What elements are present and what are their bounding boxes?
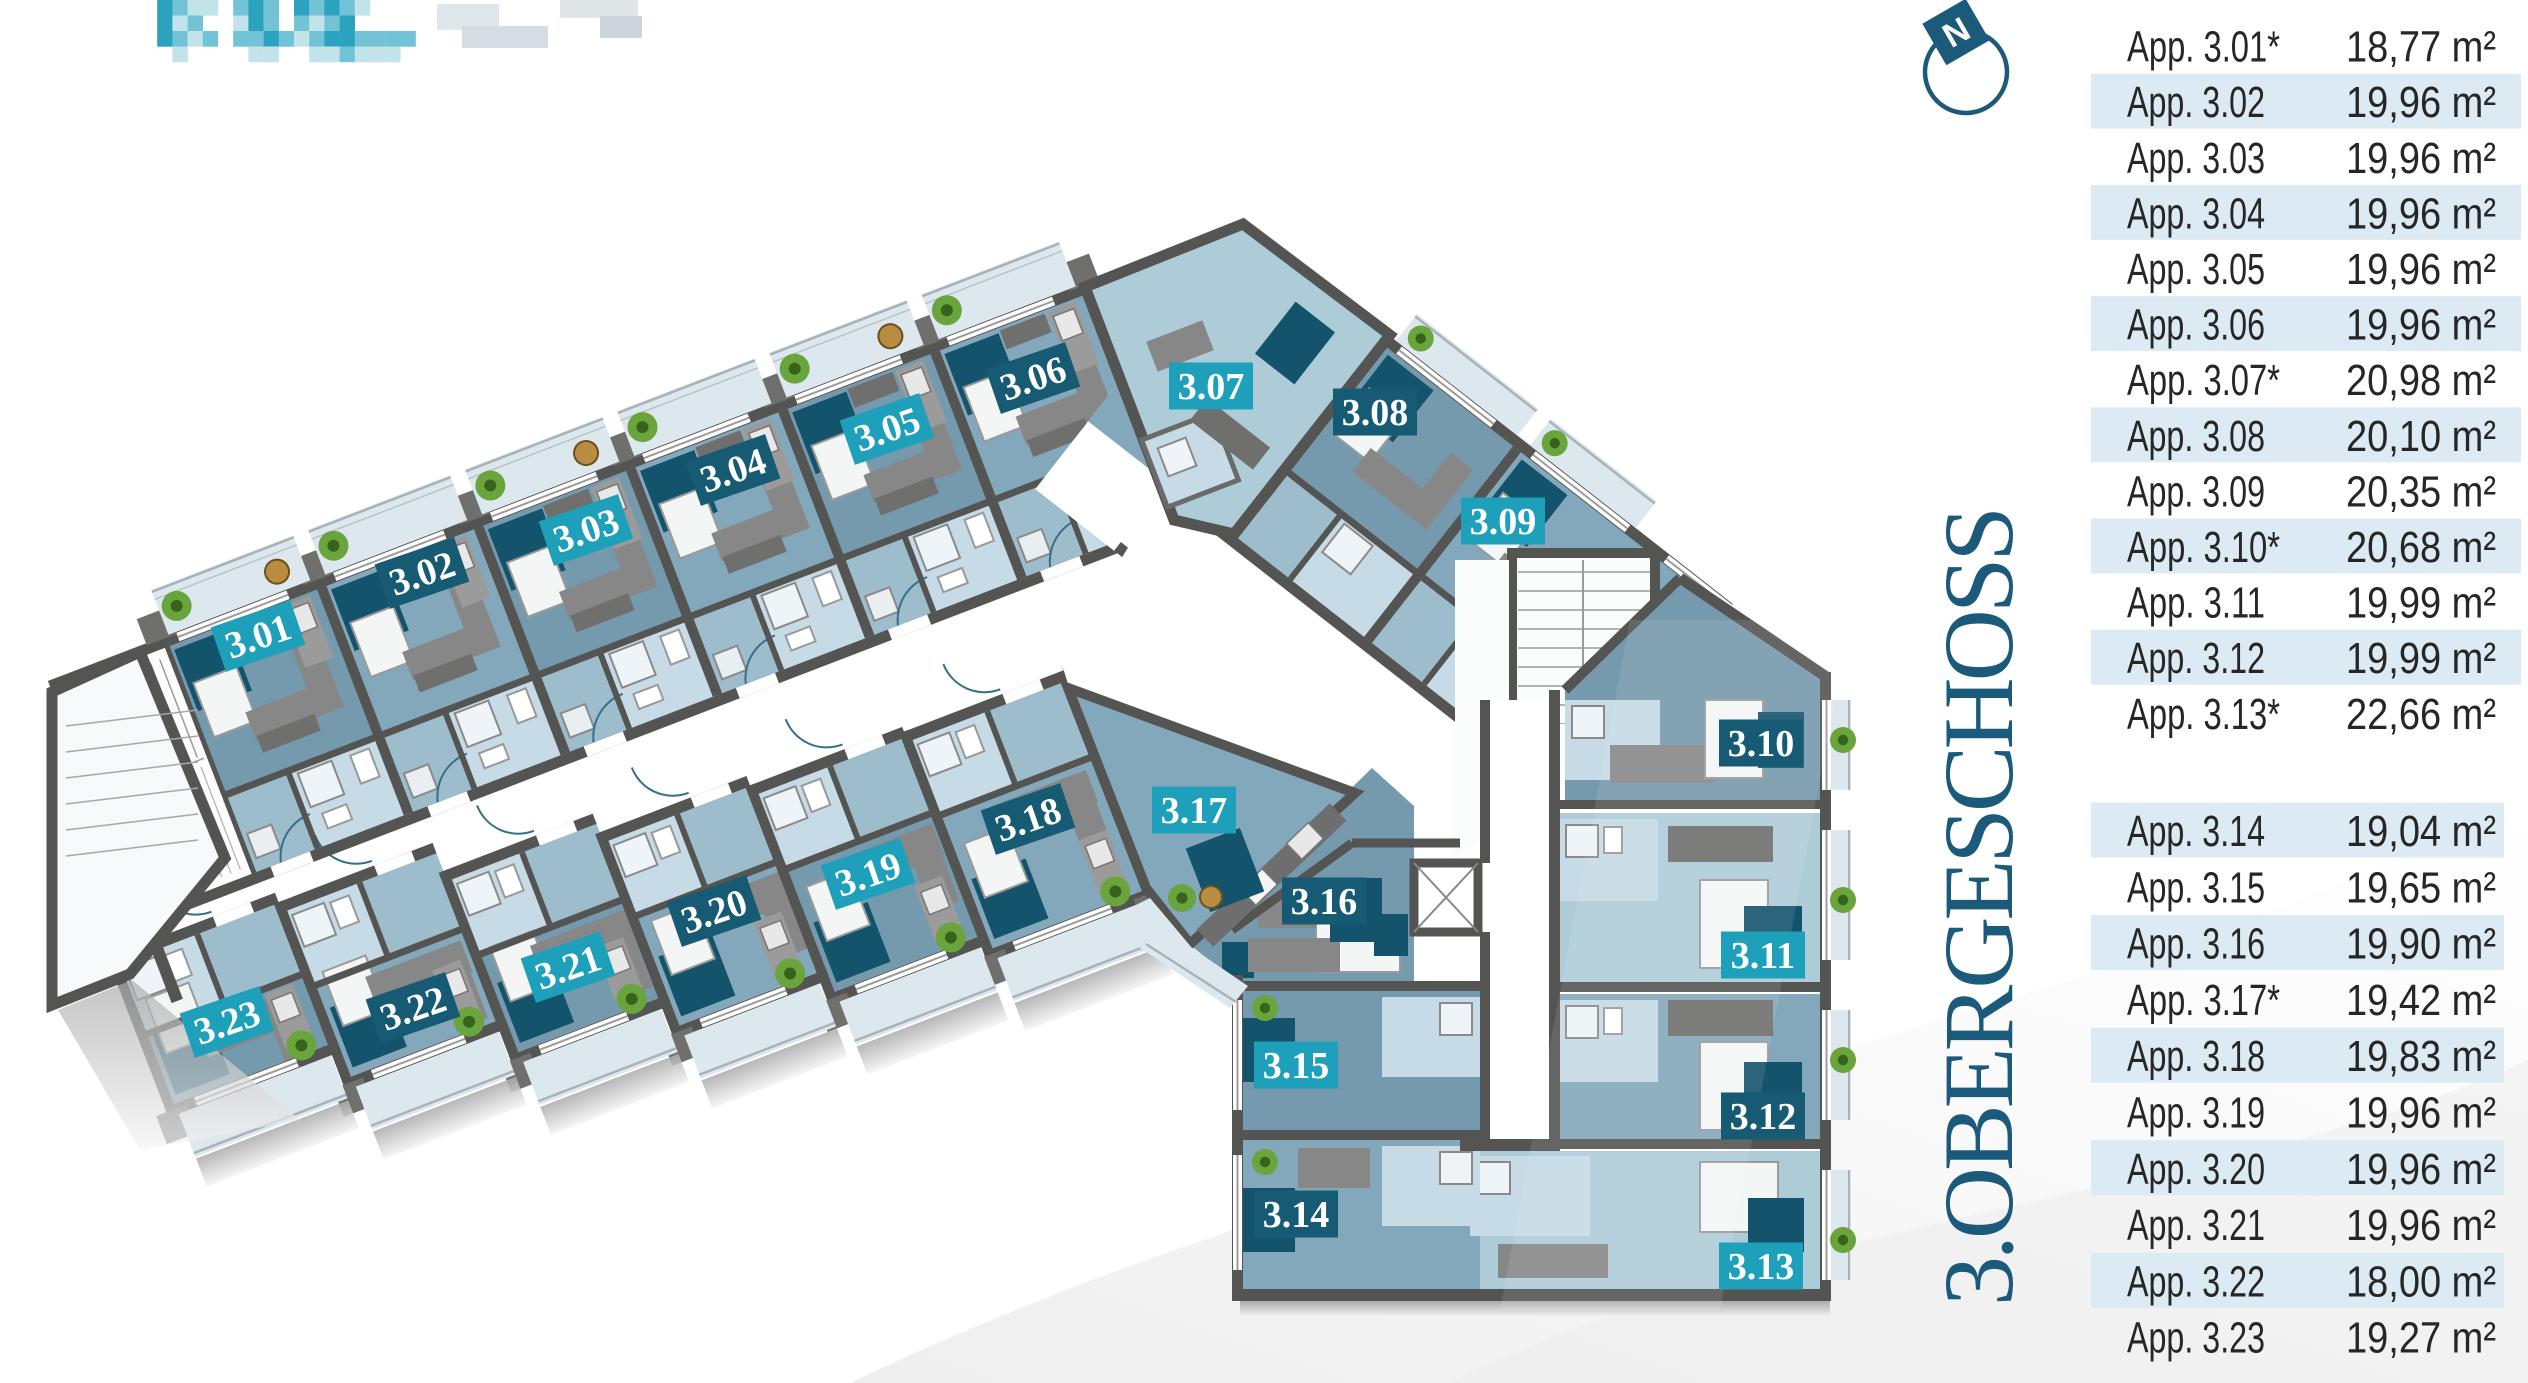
svg-text:App. 3.20: App. 3.20: [2127, 1145, 2265, 1194]
svg-text:19,96 m²: 19,96 m²: [2346, 189, 2496, 238]
svg-text:3.15: 3.15: [1263, 1045, 1330, 1087]
svg-text:20,35 m²: 20,35 m²: [2346, 467, 2496, 516]
svg-text:19,42 m²: 19,42 m²: [2346, 976, 2496, 1025]
svg-text:3.11: 3.11: [1731, 935, 1795, 977]
svg-text:App. 3.04: App. 3.04: [2127, 189, 2265, 238]
svg-text:App. 3.11: App. 3.11: [2127, 579, 2265, 628]
svg-text:App. 3.03: App. 3.03: [2127, 134, 2265, 183]
svg-text:App. 3.13*: App. 3.13*: [2127, 690, 2280, 739]
svg-text:App. 3.19: App. 3.19: [2127, 1089, 2265, 1138]
svg-text:19,96 m²: 19,96 m²: [2346, 245, 2496, 294]
svg-text:19,99 m²: 19,99 m²: [2346, 634, 2496, 683]
svg-text:3.09: 3.09: [1470, 501, 1537, 543]
svg-text:App. 3.07*: App. 3.07*: [2127, 356, 2280, 405]
svg-text:App. 3.08: App. 3.08: [2127, 412, 2265, 461]
svg-text:20,98 m²: 20,98 m²: [2346, 356, 2496, 405]
svg-text:19,96 m²: 19,96 m²: [2346, 1089, 2496, 1138]
svg-text:19,83 m²: 19,83 m²: [2346, 1032, 2496, 1081]
svg-text:19,04 m²: 19,04 m²: [2346, 807, 2496, 856]
svg-text:3.12: 3.12: [1730, 1096, 1797, 1138]
svg-text:3.07: 3.07: [1178, 366, 1245, 408]
svg-text:20,68 m²: 20,68 m²: [2346, 523, 2496, 572]
svg-text:3.13: 3.13: [1728, 1246, 1795, 1288]
svg-text:3.10: 3.10: [1728, 723, 1795, 765]
svg-text:3.14: 3.14: [1263, 1194, 1330, 1236]
svg-text:19,27 m²: 19,27 m²: [2346, 1314, 2496, 1363]
svg-text:19,96 m²: 19,96 m²: [2346, 1145, 2496, 1194]
svg-text:19,96 m²: 19,96 m²: [2346, 301, 2496, 350]
svg-text:App. 3.17*: App. 3.17*: [2127, 976, 2280, 1025]
svg-text:19,65 m²: 19,65 m²: [2346, 863, 2496, 912]
svg-text:19,90 m²: 19,90 m²: [2346, 920, 2496, 969]
svg-text:App. 3.01*: App. 3.01*: [2127, 23, 2280, 72]
svg-text:App. 3.10*: App. 3.10*: [2127, 523, 2280, 572]
svg-text:App. 3.09: App. 3.09: [2127, 467, 2265, 516]
svg-text:App. 3.14: App. 3.14: [2127, 807, 2265, 856]
svg-text:App. 3.18: App. 3.18: [2127, 1032, 2265, 1081]
svg-text:App. 3.22: App. 3.22: [2127, 1257, 2265, 1306]
svg-text:App. 3.16: App. 3.16: [2127, 920, 2265, 969]
svg-text:19,99 m²: 19,99 m²: [2346, 579, 2496, 628]
svg-text:App. 3.06: App. 3.06: [2127, 301, 2265, 350]
svg-text:18,00 m²: 18,00 m²: [2346, 1257, 2496, 1306]
svg-text:App. 3.23: App. 3.23: [2127, 1314, 2265, 1363]
svg-text:19,96 m²: 19,96 m²: [2346, 134, 2496, 183]
svg-text:19,96 m²: 19,96 m²: [2346, 78, 2496, 127]
svg-text:3.16: 3.16: [1291, 881, 1358, 923]
svg-text:18,77 m²: 18,77 m²: [2346, 23, 2496, 72]
svg-text:3.17: 3.17: [1161, 790, 1228, 832]
svg-text:3.08: 3.08: [1342, 392, 1409, 434]
svg-text:20,10 m²: 20,10 m²: [2346, 412, 2496, 461]
svg-text:3.OBERGESCHOSS: 3.OBERGESCHOSS: [1923, 506, 2034, 1306]
svg-text:App. 3.02: App. 3.02: [2127, 78, 2265, 127]
svg-text:App. 3.12: App. 3.12: [2127, 634, 2265, 683]
svg-text:App. 3.15: App. 3.15: [2127, 863, 2265, 912]
svg-text:19,96 m²: 19,96 m²: [2346, 1201, 2496, 1250]
svg-text:App. 3.05: App. 3.05: [2127, 245, 2265, 294]
svg-text:App. 3.21: App. 3.21: [2127, 1201, 2265, 1250]
svg-text:22,66 m²: 22,66 m²: [2346, 690, 2496, 739]
